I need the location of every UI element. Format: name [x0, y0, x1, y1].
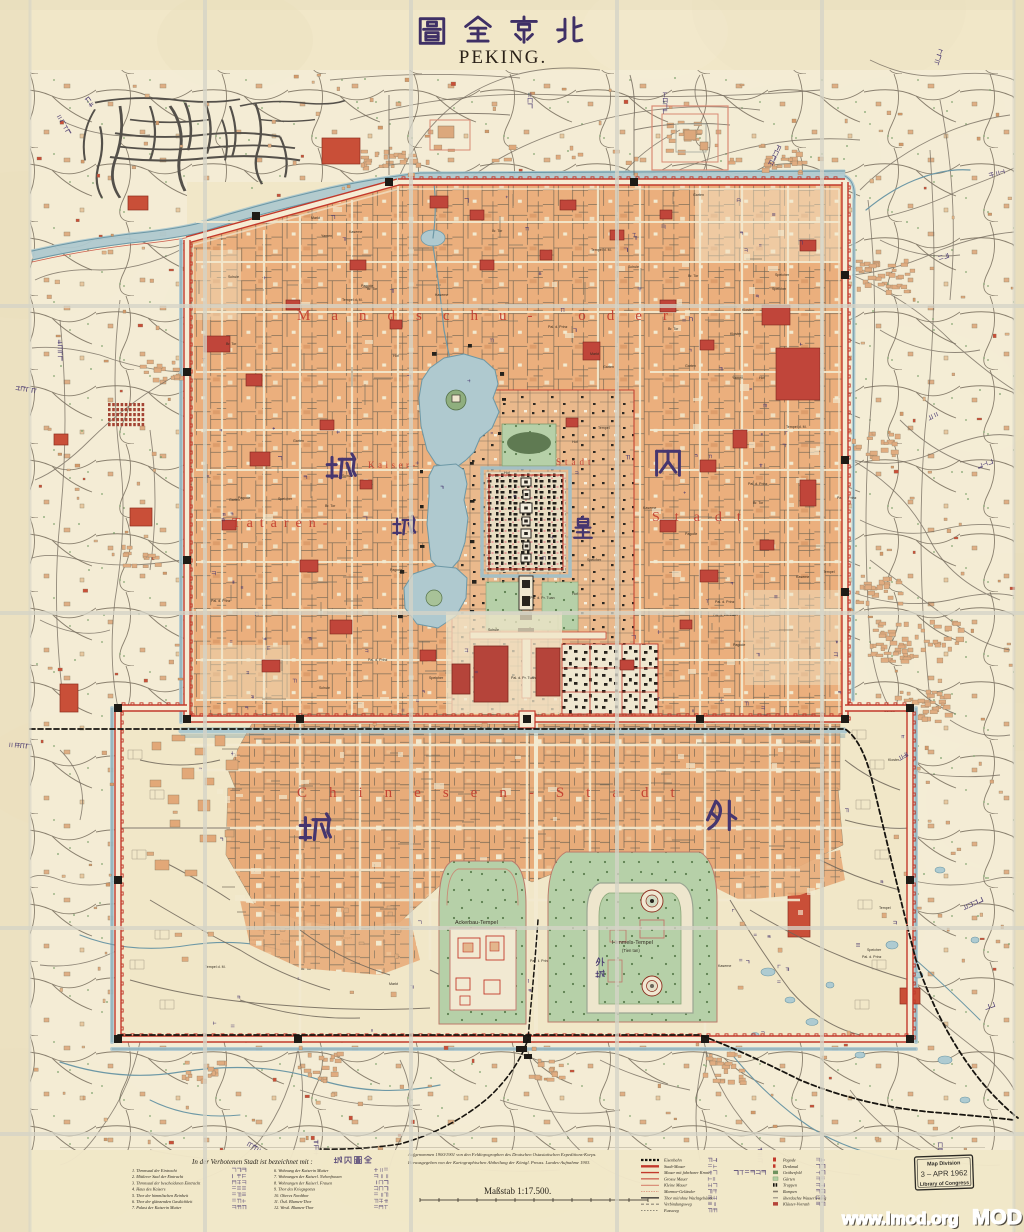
svg-text:5. Thor der himmlischen Reinhe: 5. Thor der himmlischen Reinheit [132, 1193, 189, 1198]
svg-text:Marmor-Geländer: Marmor-Geländer [663, 1189, 695, 1194]
svg-text:Br. Tor: Br. Tor [688, 274, 699, 278]
svg-text:Speicher: Speicher [587, 558, 602, 562]
svg-text:Schule: Schule [228, 275, 239, 279]
svg-text:Gärten: Gärten [783, 1176, 795, 1181]
svg-text:8. Wohnungen der Kaiserl. Frau: 8. Wohnungen der Kaiserl. Frauen [274, 1180, 332, 1185]
svg-text:Garten: Garten [293, 439, 304, 443]
svg-text:Stadt: Stadt [556, 457, 595, 467]
svg-text:www.lmod.org: www.lmod.org [841, 1209, 958, 1228]
svg-text:Maßstab 1:17.500.: Maßstab 1:17.500. [484, 1186, 551, 1196]
svg-text:Speicher: Speicher [772, 287, 787, 291]
svg-text:Garten: Garten [229, 498, 240, 502]
svg-text:Pal. d. Prinz: Pal. d. Prinz [211, 599, 231, 603]
svg-text:Eisenbahn: Eisenbahn [663, 1158, 682, 1163]
svg-text:Pagode: Pagode [782, 1158, 796, 1163]
svg-text:Schule: Schule [319, 686, 330, 690]
svg-text:Fussweg: Fussweg [663, 1208, 679, 1213]
svg-text:Br. Tor: Br. Tor [325, 504, 336, 508]
svg-text:Kleine Mauer: Kleine Mauer [663, 1183, 688, 1188]
svg-text:Mauer mit fahrbarer Krone: Mauer mit fahrbarer Krone [663, 1170, 710, 1175]
svg-text:Ackerbau-Tempel: Ackerbau-Tempel [455, 920, 498, 926]
svg-text:Rampen: Rampen [782, 1189, 797, 1194]
svg-text:Kaserne: Kaserne [718, 964, 731, 968]
svg-text:Garten: Garten [693, 193, 704, 197]
svg-text:Speicher: Speicher [278, 497, 293, 501]
svg-text:4. Haus des Kaisers: 4. Haus des Kaisers [132, 1187, 166, 1192]
svg-text:Pal. d. Prinz: Pal. d. Prinz [548, 325, 568, 329]
svg-text:3 – APR 1962: 3 – APR 1962 [920, 1168, 967, 1179]
svg-text:Chinesen-Stadt: Chinesen-Stadt [297, 785, 697, 801]
svg-text:Yamen: Yamen [732, 376, 743, 380]
svg-text:Grosse Mauer: Grosse Mauer [664, 1176, 688, 1181]
svg-text:Speicher: Speicher [867, 948, 882, 952]
svg-text:Kloster: Kloster [888, 758, 900, 762]
svg-text:9. Thor des Kriegsgottes: 9. Thor des Kriegsgottes [274, 1187, 316, 1192]
svg-text:1. Thronsaal der Eintracht: 1. Thronsaal der Eintracht [132, 1168, 178, 1173]
svg-text:Br. Tor: Br. Tor [226, 342, 237, 346]
svg-text:Herausgegeben von der Kartogra: Herausgegeben von der Kartographischen A… [407, 1160, 590, 1165]
svg-text:Markt: Markt [311, 216, 320, 220]
svg-text:Hof: Hof [393, 354, 399, 358]
svg-text:Pagode: Pagode [685, 532, 697, 536]
svg-text:Br. Tor: Br. Tor [753, 501, 764, 505]
svg-text:7. Wohnungen der Kaiserl. Nebe: 7. Wohnungen der Kaiserl. Nebenfrauen [274, 1174, 342, 1179]
svg-text:Pal. d. Pr. Tuan: Pal. d. Pr. Tuan [511, 676, 536, 680]
svg-text:PEKING.: PEKING. [459, 47, 547, 68]
svg-text:MOD: MOD [972, 1205, 1022, 1229]
svg-text:Br. Tor: Br. Tor [668, 327, 679, 331]
svg-text:Hof: Hof [572, 592, 578, 596]
svg-text:Tempel d. M.: Tempel d. M. [342, 298, 363, 302]
svg-text:Hof: Hof [759, 376, 765, 380]
svg-text:Markt: Markt [590, 352, 599, 356]
svg-text:10. Oberes Nordthor: 10. Oberes Nordthor [274, 1193, 309, 1198]
svg-text:Tempel d. M.: Tempel d. M. [591, 248, 612, 252]
svg-text:(Tien tan): (Tien tan) [622, 948, 640, 953]
svg-text:Stadt: Stadt [652, 510, 756, 525]
svg-text:3. Thronsaal der bescheidenen: 3. Thronsaal der bescheidenen Eintracht [132, 1180, 201, 1185]
svg-text:2. Mittlerer Saal der Eintrach: 2. Mittlerer Saal der Eintracht [132, 1174, 184, 1179]
svg-text:Denkmal: Denkmal [782, 1164, 799, 1169]
svg-text:Pagode: Pagode [390, 568, 402, 572]
svg-text:Speicher: Speicher [429, 676, 444, 680]
svg-text:Kläster-Vorrath: Kläster-Vorrath [782, 1202, 809, 1207]
svg-text:Thor mit/ohne Wachtgebäude: Thor mit/ohne Wachtgebäude [664, 1195, 714, 1200]
svg-text:Stadt-Mauer: Stadt-Mauer [664, 1164, 686, 1169]
svg-text:Hof: Hof [504, 471, 510, 475]
svg-text:Kaserne: Kaserne [796, 575, 809, 579]
svg-text:Pagode: Pagode [733, 643, 745, 647]
svg-text:Tempel: Tempel [598, 426, 610, 430]
svg-text:Br. Tor: Br. Tor [367, 287, 378, 291]
svg-text:6. Wohnung der Kaiserin Mutter: 6. Wohnung der Kaiserin Mutter [274, 1168, 329, 1173]
svg-text:Verbindungsweg: Verbindungsweg [664, 1202, 692, 1207]
svg-text:Tempel: Tempel [879, 906, 891, 910]
svg-text:Gräberfeld: Gräberfeld [783, 1170, 803, 1175]
svg-text:Mandschu- oder: Mandschu- oder [297, 308, 689, 324]
svg-text:Pal. d. Prinz: Pal. d. Prinz [715, 600, 735, 604]
svg-text:Schule: Schule [488, 628, 499, 632]
svg-text:Pal. d. Prinz: Pal. d. Prinz [748, 482, 768, 486]
svg-text:Tempel d. M.: Tempel d. M. [786, 425, 807, 429]
svg-text:In der Verbotenen Stadt ist be: In der Verbotenen Stadt ist bezeichnet m… [191, 1158, 313, 1166]
svg-text:12. Westl. Blumen-Thor: 12. Westl. Blumen-Thor [274, 1205, 314, 1210]
svg-text:7. Palast der Kaiserin Mutter: 7. Palast der Kaiserin Mutter [132, 1205, 182, 1210]
svg-text:Kaserne: Kaserne [349, 230, 362, 234]
svg-text:Tempel d. M.: Tempel d. M. [205, 965, 226, 969]
svg-text:Aufgenommen 1900/1901 von den: Aufgenommen 1900/1901 von den Feldtopogr… [407, 1152, 596, 1157]
svg-text:Markt: Markt [389, 982, 398, 986]
svg-text:Tataren-: Tataren- [232, 516, 334, 531]
svg-text:Schule: Schule [628, 265, 639, 269]
svg-text:Yamen: Yamen [321, 234, 332, 238]
svg-text:Garten: Garten [685, 364, 696, 368]
svg-text:Truppen: Truppen [783, 1183, 797, 1188]
svg-text:Pal. d. Pr. Tuan: Pal. d. Pr. Tuan [530, 596, 555, 600]
svg-text:Pal. d. Prinz: Pal. d. Prinz [862, 955, 882, 959]
svg-text:Speicher: Speicher [775, 273, 790, 277]
svg-text:Pal. d. Prinz: Pal. d. Prinz [530, 959, 550, 963]
svg-text:Tempel: Tempel [823, 570, 835, 574]
svg-text:Pal. d. Prinz: Pal. d. Prinz [368, 658, 388, 662]
svg-text:6. Thor der glänzenden Gastlic: 6. Thor der glänzenden Gastlichkeit [132, 1199, 193, 1204]
svg-text:11. Östl. Blumen-Thor: 11. Östl. Blumen-Thor [274, 1199, 312, 1204]
svg-text:Hof: Hof [572, 440, 578, 444]
svg-text:Br. Tor: Br. Tor [492, 229, 503, 233]
svg-text:Map Division: Map Division [927, 1160, 960, 1167]
svg-text:Kaserne: Kaserne [435, 293, 448, 297]
svg-text:Garten: Garten [603, 365, 614, 369]
svg-text:Kloster: Kloster [742, 308, 754, 312]
svg-text:Kloster: Kloster [730, 332, 742, 336]
